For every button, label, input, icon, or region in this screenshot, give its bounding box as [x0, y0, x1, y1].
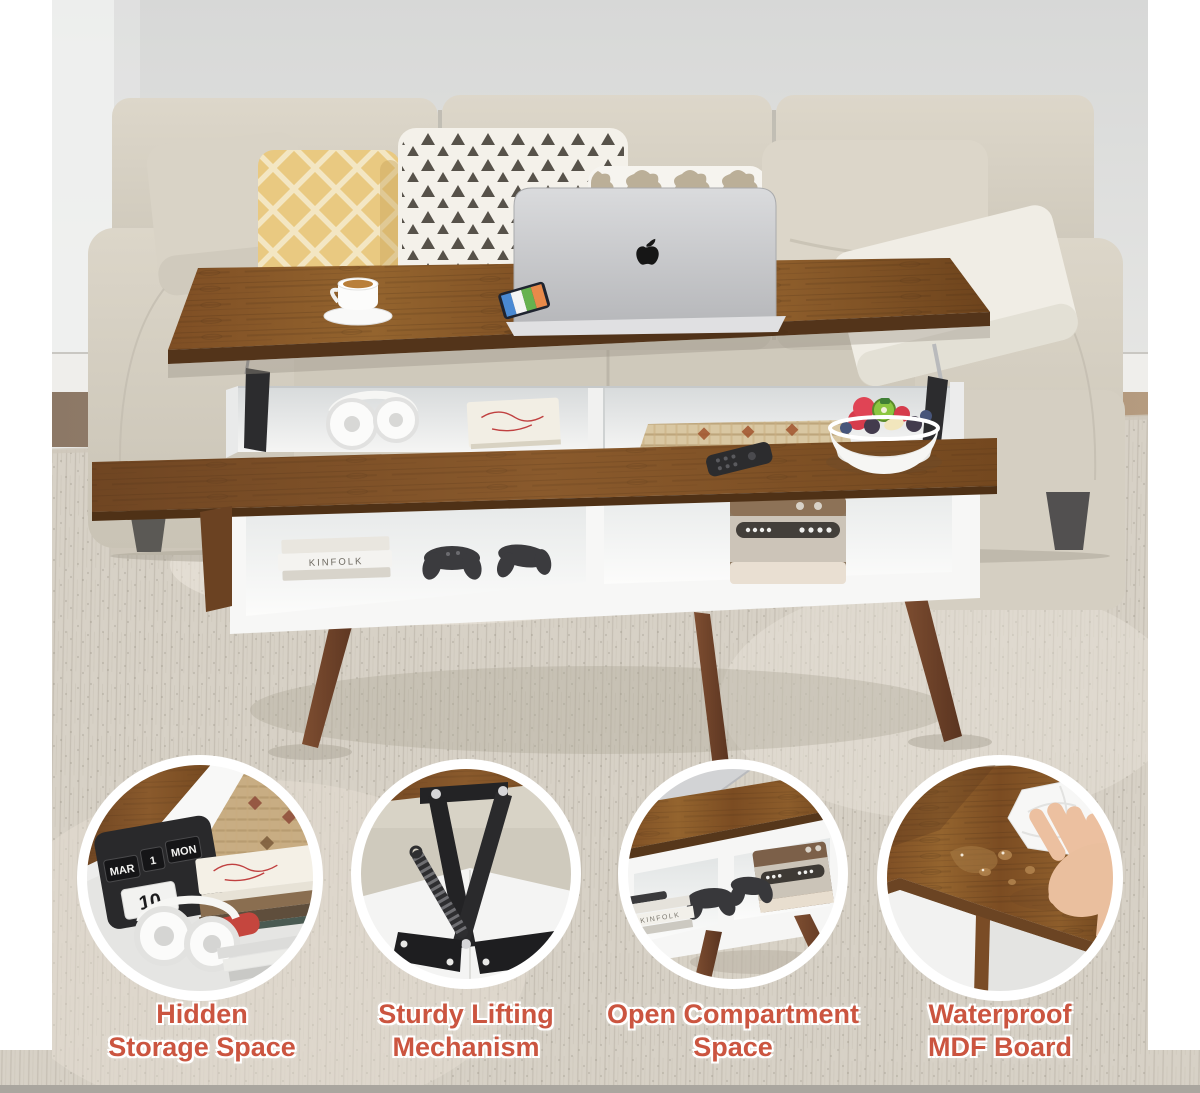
product-image: KINFOLK	[0, 0, 1200, 1093]
caption-line: Storage Space	[108, 1032, 296, 1062]
storage-divider	[588, 388, 604, 450]
sketch-book	[467, 397, 561, 449]
caption-line: MDF Board	[928, 1032, 1072, 1062]
table-shadow	[250, 666, 950, 754]
caption-line: Sturdy Lifting	[378, 999, 553, 1029]
caption-open-compartment: Open CompartmentSpace	[593, 998, 873, 1064]
caption-line: Space	[693, 1032, 773, 1062]
caption-lifting-mechanism: Sturdy LiftingMechanism	[326, 998, 606, 1064]
book-spine-label: KINFOLK	[309, 556, 364, 569]
radio-speaker	[730, 496, 846, 584]
books-kinfolk: KINFOLK	[277, 536, 392, 581]
living-room-scene: KINFOLK	[0, 0, 1200, 1093]
caption-line: Mechanism	[392, 1032, 539, 1062]
caption-line: Open Compartment	[607, 999, 859, 1029]
caption-line: Waterproof	[929, 999, 1072, 1029]
bottom-bar	[0, 1085, 1200, 1093]
caption-line: Hidden	[156, 999, 248, 1029]
caption-waterproof: WaterproofMDF Board	[860, 998, 1140, 1064]
caption-hidden-storage: HiddenStorage Space	[62, 998, 342, 1064]
laptop	[504, 188, 788, 340]
